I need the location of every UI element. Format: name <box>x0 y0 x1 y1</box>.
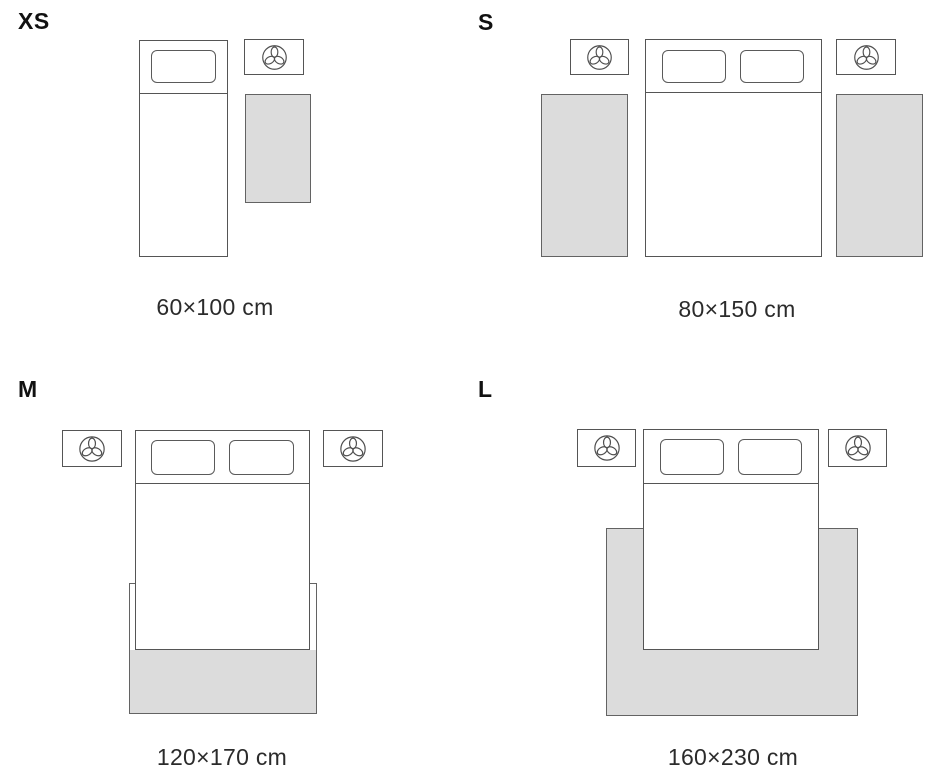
pillow-left <box>662 50 726 83</box>
size-section-m: M 120×170 cm <box>0 340 470 780</box>
double-bed <box>645 39 822 257</box>
single-bed <box>139 40 228 257</box>
pillow-right <box>738 439 802 475</box>
nightstand-right <box>828 429 887 467</box>
pillow-right <box>229 440 294 475</box>
size-dimensions: 160×230 cm <box>533 744 933 771</box>
plant-icon <box>852 43 881 72</box>
nightstand-right <box>323 430 383 467</box>
pillow-left <box>151 440 215 475</box>
size-label: XS <box>18 8 50 35</box>
nightstand-left <box>577 429 636 467</box>
nightstand-right <box>836 39 896 75</box>
rug-left <box>541 94 628 257</box>
size-dimensions: 80×150 cm <box>537 296 937 323</box>
headboard <box>646 40 821 93</box>
rug <box>245 94 311 203</box>
rug-size-guide: XS 60×100 cm S 80×150 cm <box>0 0 940 780</box>
nightstand-left <box>570 39 629 75</box>
pillow-left <box>660 439 724 475</box>
plant-icon <box>585 43 614 72</box>
headboard <box>140 41 227 94</box>
nightstand <box>244 39 304 75</box>
size-dimensions: 60×100 cm <box>15 294 415 321</box>
headboard <box>644 430 818 484</box>
size-label: S <box>478 9 494 36</box>
pillow <box>151 50 216 83</box>
double-bed <box>135 430 310 650</box>
headboard <box>136 431 309 484</box>
size-label: L <box>478 376 493 403</box>
size-dimensions: 120×170 cm <box>22 744 422 771</box>
plant-icon <box>77 434 107 464</box>
rug-right <box>836 94 923 257</box>
plant-icon <box>338 434 368 464</box>
size-section-l: L 160×230 cm <box>470 340 940 780</box>
size-section-xs: XS 60×100 cm <box>0 0 470 340</box>
rug-visible-area <box>130 650 316 713</box>
plant-icon <box>843 433 873 463</box>
size-label: M <box>18 376 38 403</box>
nightstand-left <box>62 430 122 467</box>
pillow-right <box>740 50 804 83</box>
double-bed <box>643 429 819 650</box>
plant-icon <box>260 43 289 72</box>
plant-icon <box>592 433 622 463</box>
size-section-s: S 80×150 cm <box>470 0 940 340</box>
